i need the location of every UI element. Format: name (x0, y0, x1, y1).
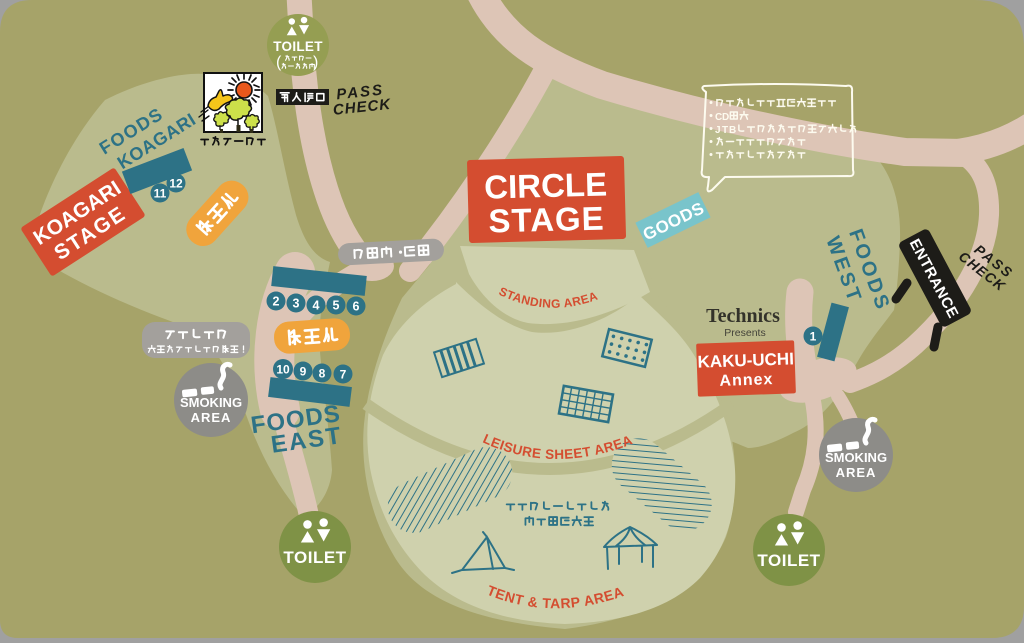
svg-text:J: J (715, 125, 721, 136)
svg-text:Technics: Technics (706, 305, 780, 327)
svg-text:STAGE: STAGE (488, 199, 605, 239)
svg-text:5: 5 (333, 299, 340, 313)
svg-text:AREA: AREA (836, 465, 877, 480)
svg-text:6: 6 (353, 300, 360, 314)
svg-text:9: 9 (300, 365, 307, 379)
svg-text:2: 2 (273, 295, 280, 309)
svg-text:TOILET: TOILET (757, 551, 820, 570)
svg-text:AREA: AREA (191, 410, 232, 425)
svg-text:4: 4 (313, 299, 320, 313)
svg-text:D: D (722, 112, 729, 123)
svg-text:KAKU-UCHI: KAKU-UCHI (697, 349, 794, 371)
svg-text:SMOKING: SMOKING (180, 395, 242, 410)
svg-text:7: 7 (340, 368, 347, 382)
svg-text:3: 3 (293, 297, 300, 311)
svg-text:B: B (729, 125, 736, 136)
svg-text:Presents: Presents (724, 327, 765, 339)
svg-text:Annex: Annex (719, 371, 773, 390)
svg-text:10: 10 (276, 363, 290, 377)
svg-text:11: 11 (154, 187, 167, 201)
svg-text:1: 1 (810, 330, 817, 344)
svg-text:TOILET: TOILET (283, 548, 346, 567)
svg-text:(: ( (276, 54, 282, 71)
svg-text:SMOKING: SMOKING (825, 450, 887, 465)
svg-text:T: T (722, 125, 728, 136)
svg-text:12: 12 (169, 177, 183, 191)
svg-text:TOILET: TOILET (273, 39, 323, 54)
svg-text:8: 8 (319, 367, 326, 381)
